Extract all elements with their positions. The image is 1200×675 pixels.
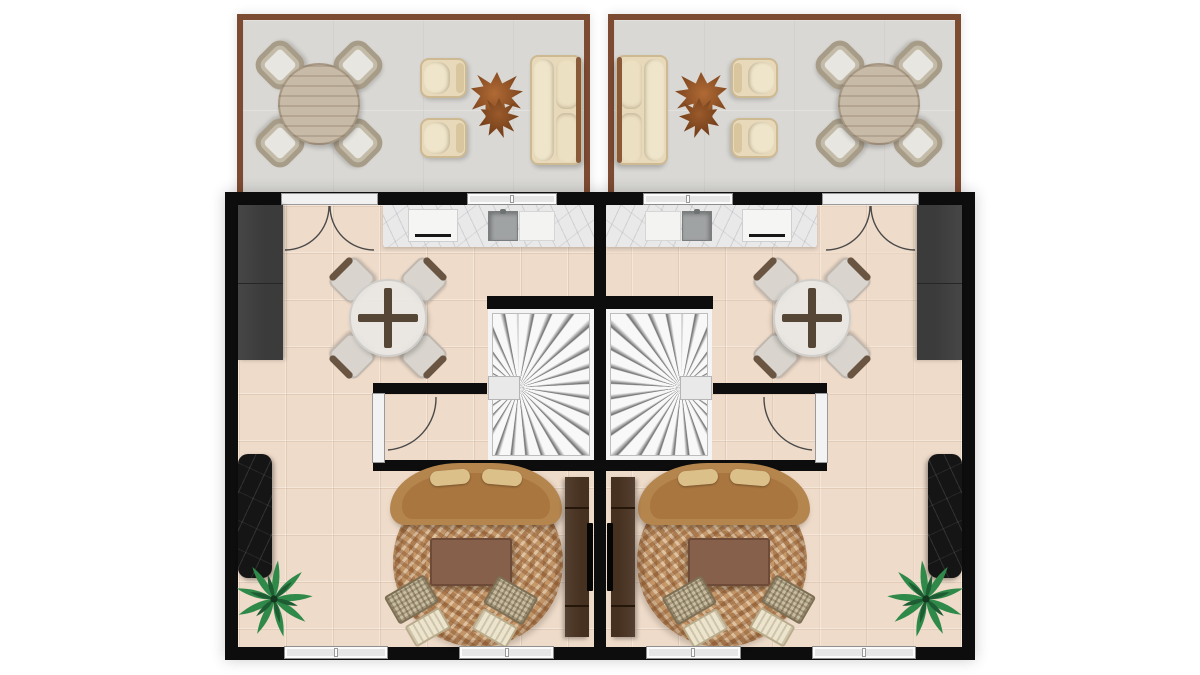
stair-wall: [606, 296, 713, 309]
french-door-swing-arcs: [283, 205, 376, 255]
winder-staircase: [606, 309, 712, 460]
unit-interior: [238, 205, 594, 647]
organic-leaf-coffee-table: [675, 72, 727, 138]
table-base-bar: [384, 288, 392, 348]
living-room-sofa: [638, 463, 810, 525]
interior-door-leaf: [815, 393, 828, 463]
window-mullion: [686, 195, 690, 203]
palm-plant: [228, 553, 320, 645]
cooktop: [742, 209, 792, 242]
tv: [587, 523, 593, 591]
tall-cabinet: [238, 205, 283, 360]
sofa-frame-rail: [576, 57, 581, 163]
living-room-sofa: [390, 463, 562, 525]
kitchen-counter: [383, 205, 594, 247]
tv-console: [565, 477, 589, 637]
window-mullion: [692, 648, 696, 657]
interior-wall: [713, 383, 827, 394]
interior-door-leaf: [372, 393, 385, 463]
cooktop: [408, 209, 458, 242]
outdoor-sofa: [616, 55, 668, 165]
outdoor-armchair: [420, 58, 467, 98]
sink: [682, 211, 712, 241]
dining-set: [333, 263, 443, 373]
outdoor-dining-set: [819, 42, 939, 166]
interior-door-swing-arc: [385, 394, 439, 452]
cutting-board: [645, 211, 681, 241]
french-door-swing-arcs: [824, 205, 917, 255]
window-mullion: [862, 648, 866, 657]
stair-wall: [487, 296, 594, 309]
sofa-frame-rail: [617, 57, 622, 163]
outdoor-armchair: [731, 58, 778, 98]
unit-right: [606, 205, 962, 647]
floor-plan-canvas: [0, 0, 1200, 675]
organic-leaf-coffee-table: [471, 72, 523, 138]
terrace-right: [608, 14, 961, 194]
unit-left: [238, 205, 594, 647]
unit-interior-mirrored: [606, 205, 962, 647]
sofa-seat-cushion: [620, 60, 642, 109]
french-door-threshold: [281, 193, 378, 205]
table-base-bar: [808, 288, 816, 348]
kitchen-counter: [606, 205, 817, 247]
window-mullion: [510, 195, 514, 203]
outdoor-dining-set: [259, 42, 379, 166]
sink: [488, 211, 518, 241]
round-outdoor-table: [838, 63, 920, 145]
sofa-seat: [402, 473, 550, 519]
outdoor-armchair: [420, 118, 467, 158]
window-mullion: [334, 648, 338, 657]
palm-plant: [880, 553, 972, 645]
terrace-content: [243, 20, 584, 194]
round-outdoor-table: [278, 63, 360, 145]
sofa-seat-cushion: [620, 113, 642, 162]
rear-window: [285, 647, 387, 658]
cutting-board: [519, 211, 555, 241]
kitchen-window: [468, 194, 556, 204]
rear-window: [647, 647, 740, 658]
round-dining-table: [349, 279, 427, 357]
rear-window: [813, 647, 915, 658]
terrace-left: [237, 14, 590, 194]
stair-landing: [680, 376, 712, 400]
round-dining-table: [773, 279, 851, 357]
stair-landing: [488, 376, 520, 400]
building-walls: [225, 192, 975, 660]
sofa-seat: [650, 473, 798, 519]
winder-staircase: [488, 309, 594, 460]
terrace-content-mirrored: [614, 20, 955, 194]
french-door-threshold: [822, 193, 919, 205]
kitchen-window: [644, 194, 732, 204]
outdoor-sofa: [530, 55, 582, 165]
outdoor-armchair: [731, 118, 778, 158]
interior-wall: [373, 383, 487, 394]
dining-set: [757, 263, 867, 373]
tv: [607, 523, 613, 591]
window-mullion: [505, 648, 509, 657]
sofa-back-cushion: [644, 59, 664, 161]
rear-window: [460, 647, 553, 658]
sofa-back-cushion: [534, 59, 554, 161]
interior-door-swing-arc: [761, 394, 815, 452]
sofa-seat-cushion: [556, 113, 578, 162]
tall-cabinet: [917, 205, 962, 360]
tv-console: [611, 477, 635, 637]
sofa-seat-cushion: [556, 60, 578, 109]
